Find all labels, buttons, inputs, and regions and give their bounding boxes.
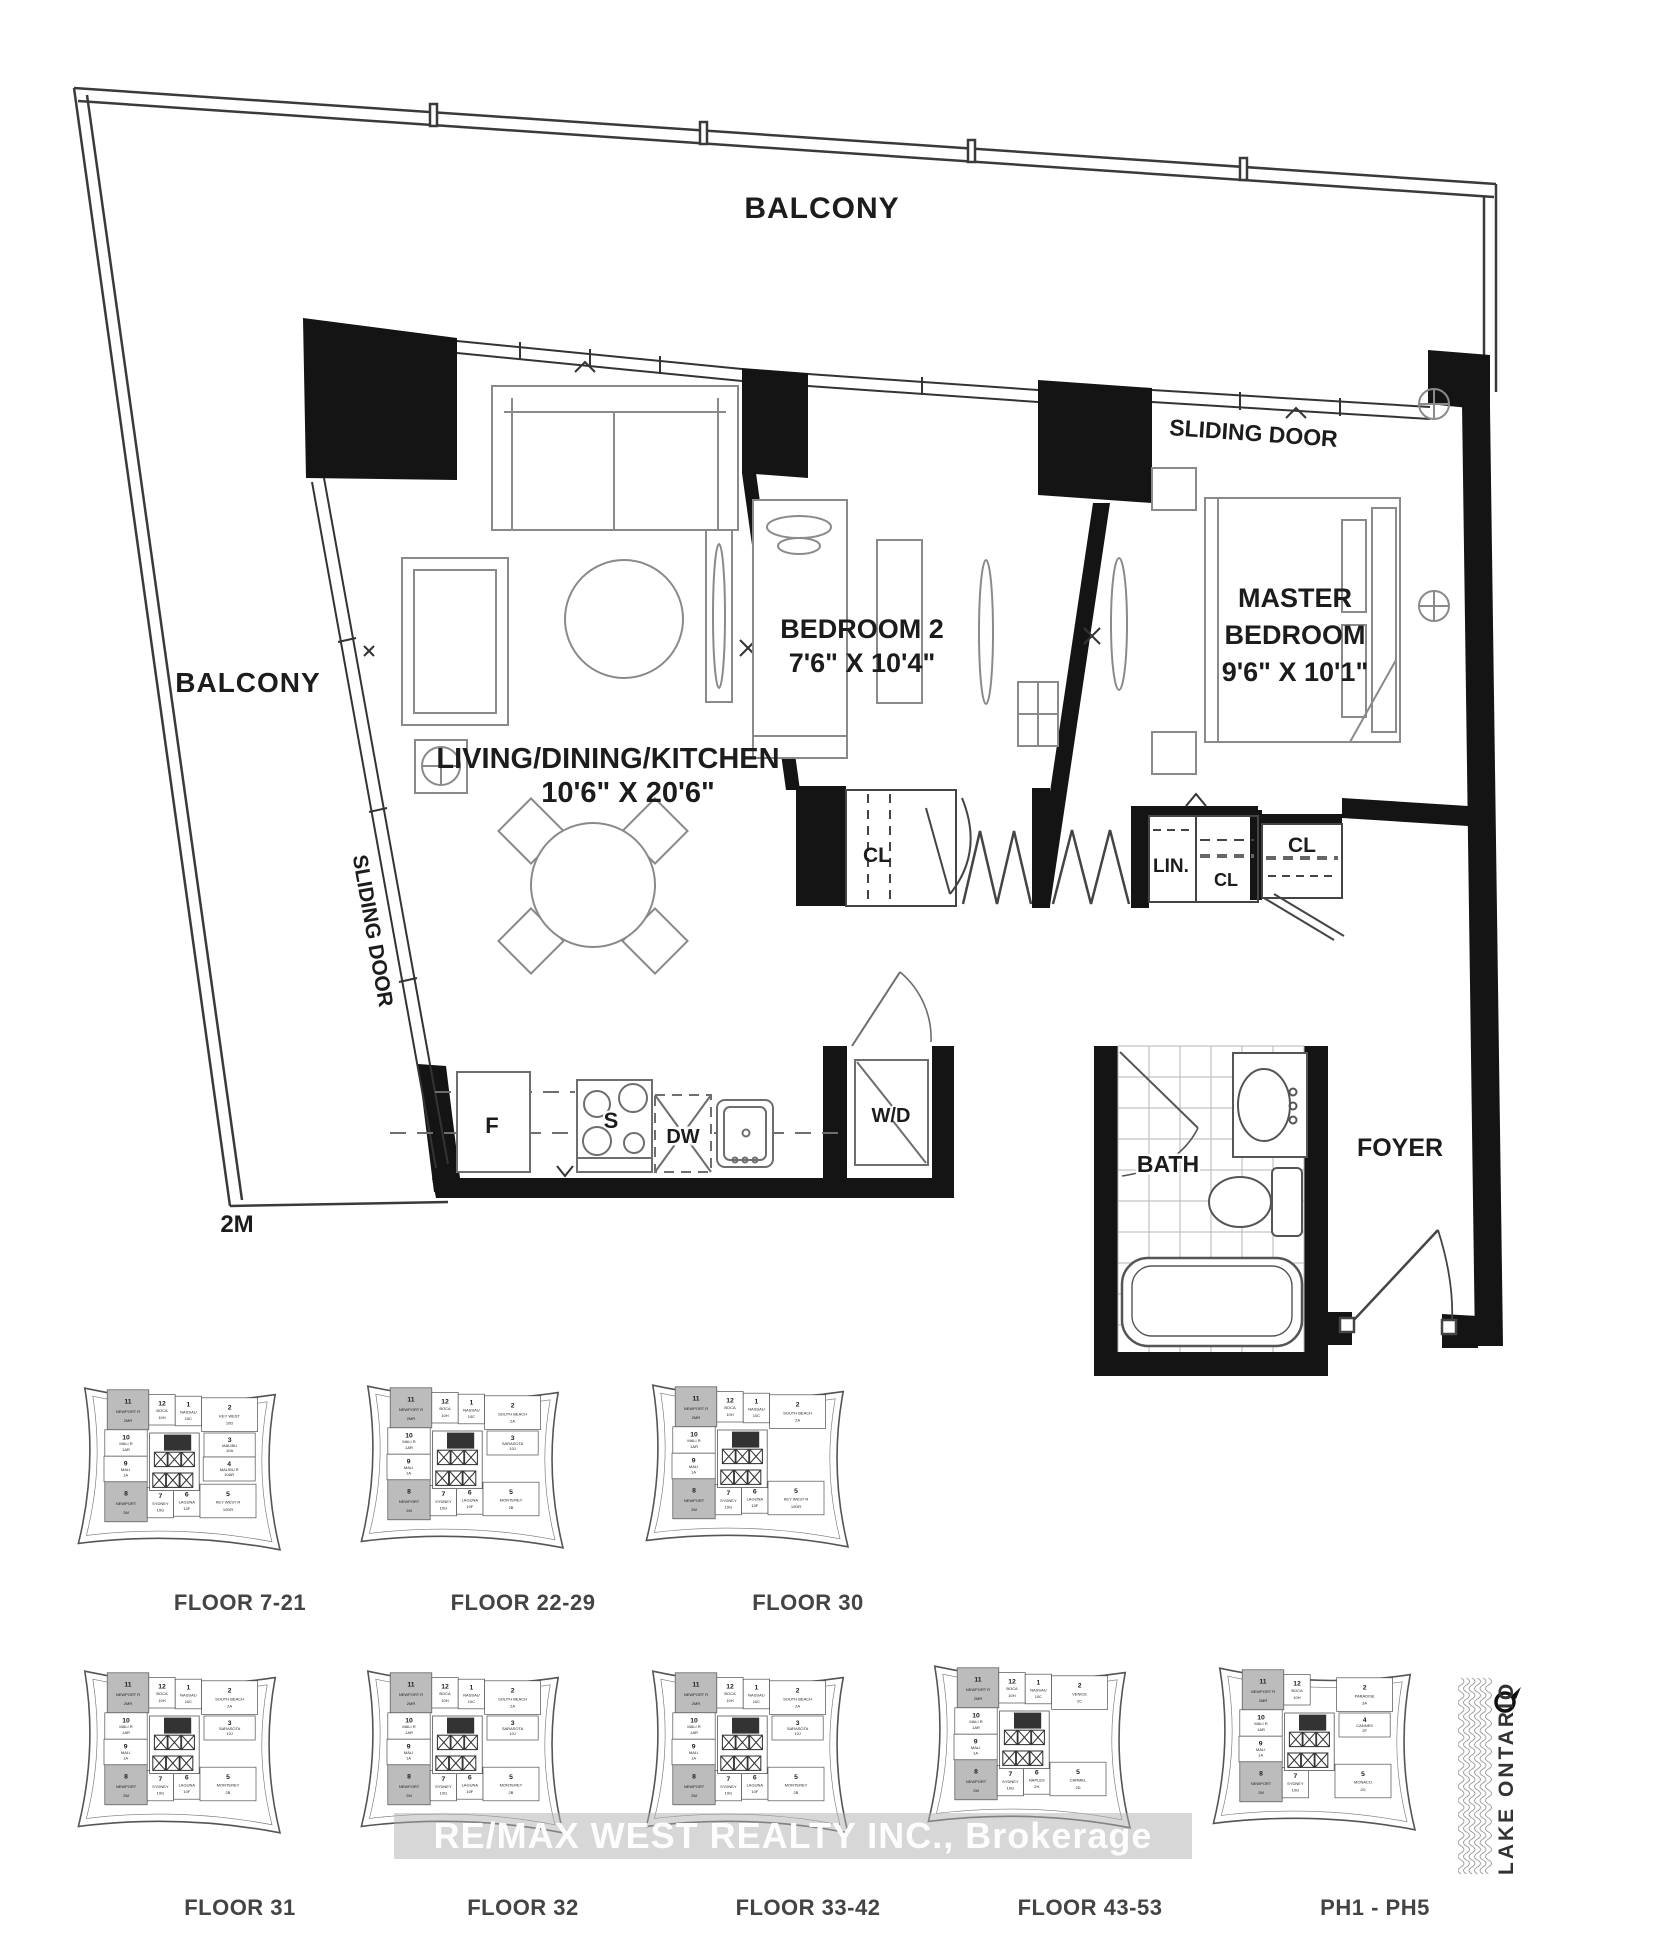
svg-text:10H: 10H	[441, 1413, 448, 1418]
svg-text:10F: 10F	[751, 1789, 758, 1794]
svg-text:2M: 2M	[406, 1508, 412, 1513]
svg-text:1AR: 1AR	[405, 1730, 413, 1735]
svg-text:1AR: 1AR	[690, 1444, 698, 1449]
svg-text:SYDNEY: SYDNEY	[720, 1784, 737, 1789]
svg-text:NEWPORT R: NEWPORT R	[966, 1687, 990, 1692]
svg-text:MALI R: MALI R	[119, 1724, 132, 1729]
svg-text:NASSAU: NASSAU	[1030, 1687, 1047, 1692]
svg-text:2A: 2A	[227, 1704, 232, 1709]
svg-text:10J: 10J	[509, 1731, 515, 1736]
keyplate-unit-3: 3MALIBU10A	[204, 1433, 255, 1457]
keyplate-unit-5: 5KEY WEST R10DR	[768, 1481, 824, 1515]
keyplate-floor-label: FLOOR 33-42	[700, 1895, 916, 1921]
walls	[303, 318, 1503, 1376]
keyplate-unit-5: 5MONTEREY2B	[483, 1767, 539, 1801]
keyplate-core	[718, 1430, 768, 1488]
svg-text:SARASOTA: SARASOTA	[219, 1726, 241, 1731]
keyplate-unit-8: 8NEWPORT2M	[673, 1479, 715, 1519]
keyplate-unit-3: 3SARASOTA10J	[487, 1716, 538, 1740]
svg-text:5: 5	[509, 1489, 513, 1496]
keyplate-floor-label: FLOOR 32	[415, 1895, 631, 1921]
svg-text:7: 7	[442, 1491, 446, 1498]
svg-text:1: 1	[755, 1685, 759, 1692]
svg-text:6: 6	[468, 1775, 472, 1782]
svg-text:2B: 2B	[509, 1790, 514, 1795]
svg-text:NEWPORT: NEWPORT	[399, 1499, 420, 1504]
keyplate-unit-9: 9MALI1A	[1239, 1736, 1282, 1762]
svg-text:MALI: MALI	[404, 1750, 413, 1755]
svg-text:MALI: MALI	[1256, 1747, 1265, 1752]
svg-text:2: 2	[796, 1687, 800, 1694]
keyplate-unit-2: 2SOUTH BEACH2A	[202, 1681, 258, 1715]
master-dims: 9'6" X 10'1"	[1222, 657, 1369, 687]
svg-text:NEWPORT R: NEWPORT R	[1251, 1689, 1275, 1694]
svg-text:10C: 10C	[468, 1699, 475, 1704]
svg-text:NEWPORT: NEWPORT	[966, 1779, 987, 1784]
svg-text:10F: 10F	[183, 1506, 190, 1511]
keyplate-unit-2: 2SOUTH BEACH2A	[770, 1681, 826, 1715]
keyplate-unit-8: 8NEWPORT2M	[673, 1765, 715, 1805]
svg-text:11: 11	[692, 1395, 699, 1402]
keyplate-unit-7: 7SYDNEY10G	[715, 1484, 741, 1514]
svg-text:10C: 10C	[753, 1413, 760, 1418]
svg-text:8: 8	[692, 1773, 696, 1780]
master-label-1: MASTER	[1238, 583, 1352, 613]
svg-text:12: 12	[158, 1400, 166, 1407]
svg-text:SOUTH BEACH: SOUTH BEACH	[498, 1696, 527, 1701]
keyplate-unit-7: 7SYDNEY10G	[147, 1770, 173, 1800]
svg-text:1: 1	[755, 1399, 759, 1406]
keyplate-unit-5: 5CARMEL2D	[1050, 1762, 1106, 1796]
balcony-top-label: BALCONY	[744, 192, 899, 225]
keyplate-unit-8: 8NEWPORT2M	[388, 1765, 430, 1805]
svg-text:2A: 2A	[795, 1418, 800, 1423]
svg-text:NASSAU: NASSAU	[748, 1406, 765, 1411]
keyplate-unit-7: 7SYDNEY10G	[430, 1485, 456, 1515]
closet-master-label: CL	[1288, 834, 1316, 857]
svg-text:NEWPORT: NEWPORT	[116, 1784, 137, 1789]
svg-text:10: 10	[122, 1434, 130, 1441]
keyplate-unit-10: 10MALI R1AR	[388, 1713, 430, 1739]
keyplate-core	[1285, 1713, 1335, 1771]
svg-text:5: 5	[226, 1491, 230, 1498]
keyplate-unit-2: 2SOUTH BEACH2A	[485, 1396, 541, 1430]
svg-text:MALI R: MALI R	[402, 1439, 415, 1444]
svg-text:10G: 10G	[725, 1505, 733, 1510]
svg-text:11: 11	[1259, 1678, 1266, 1685]
keyplate-unit-7: 7SYDNEY10G	[997, 1765, 1023, 1795]
brokerage-watermark: RE/MAX WEST REALTY INC., Brokerage	[394, 1813, 1192, 1859]
master-label-2: BEDROOM	[1225, 620, 1366, 650]
svg-text:11: 11	[124, 1681, 131, 1688]
svg-text:2M: 2M	[406, 1793, 412, 1798]
keyplate-floor-7-21: 11NEWPORT R2MR12BOCA10H1NASSAU10C2KEY WE…	[72, 1385, 288, 1577]
keyplate-unit-5: 5MONTEREY2B	[483, 1482, 539, 1516]
svg-text:2: 2	[511, 1402, 515, 1409]
keyplate-unit-5: 5MONTEREY2B	[200, 1767, 256, 1801]
svg-text:BOCA: BOCA	[156, 1408, 168, 1413]
svg-text:5: 5	[226, 1774, 230, 1781]
linen-cl-label: CL	[1214, 870, 1238, 890]
keyplate-core	[1000, 1711, 1050, 1769]
svg-text:12: 12	[441, 1398, 449, 1405]
keyplate-unit-11: 11NEWPORT R2MR	[390, 1673, 432, 1713]
svg-text:10F: 10F	[466, 1504, 473, 1509]
svg-text:10F: 10F	[751, 1503, 758, 1508]
svg-text:10J: 10J	[509, 1446, 515, 1451]
keyplate-unit-12: 12BOCA10H	[149, 1395, 175, 1425]
keyplate-unit-11: 11NEWPORT R2MR	[107, 1390, 149, 1430]
svg-text:2MR: 2MR	[124, 1418, 133, 1423]
keyplate-floor-label: FLOOR 30	[700, 1590, 916, 1616]
svg-text:MONTEREY: MONTEREY	[500, 1498, 523, 1503]
svg-text:1AR: 1AR	[690, 1730, 698, 1735]
svg-text:12: 12	[726, 1683, 734, 1690]
svg-text:6: 6	[753, 1489, 757, 1496]
closet-bedroom2-label: CL	[863, 844, 891, 867]
keyplate-unit-12: 12BOCA10H	[717, 1678, 743, 1708]
keyplate-unit-1: 1NASSAU10C	[743, 1393, 769, 1423]
svg-text:10DR: 10DR	[791, 1504, 801, 1509]
keyplate-floor-label: PH1 - PH5	[1267, 1895, 1483, 1921]
svg-text:1AR: 1AR	[122, 1730, 130, 1735]
svg-text:8: 8	[124, 1773, 128, 1780]
keyplate-floor-label: FLOOR 43-53	[982, 1895, 1198, 1921]
svg-text:NAPLES: NAPLES	[1029, 1777, 1045, 1782]
keyplate-unit-10: 10MALI R1AR	[673, 1427, 715, 1453]
svg-text:10: 10	[690, 1717, 698, 1724]
svg-text:2B: 2B	[226, 1790, 231, 1795]
svg-text:6: 6	[753, 1775, 757, 1782]
svg-text:8: 8	[692, 1487, 696, 1494]
svg-text:SYDNEY: SYDNEY	[435, 1499, 452, 1504]
svg-text:10H: 10H	[726, 1698, 733, 1703]
keyplate-floor-30: 11NEWPORT R2MR12BOCA10H1NASSAU10C2SOUTH …	[640, 1382, 856, 1574]
svg-text:5: 5	[1361, 1771, 1365, 1778]
svg-text:KEY WEST: KEY WEST	[219, 1413, 240, 1418]
svg-text:KEY WEST R: KEY WEST R	[216, 1500, 241, 1505]
svg-text:11: 11	[124, 1398, 131, 1405]
bedroom2-dims: 7'6" X 10'4"	[789, 648, 936, 678]
keyplate-unit-1: 1NASSAU10C	[743, 1679, 769, 1709]
keyplate-unit-1: 1NASSAU10C	[175, 1679, 201, 1709]
svg-text:KEY WEST R: KEY WEST R	[784, 1497, 809, 1502]
washer-dryer-label: W/D	[872, 1105, 911, 1127]
svg-text:2M: 2M	[973, 1788, 979, 1793]
svg-text:10G: 10G	[157, 1791, 165, 1796]
keyplate-unit-2: 2KEY WEST10D	[202, 1398, 258, 1432]
bath-fixtures	[1120, 1052, 1307, 1346]
svg-text:1: 1	[187, 1685, 191, 1692]
svg-text:CARMEL: CARMEL	[1070, 1778, 1087, 1783]
svg-text:10D: 10D	[226, 1421, 233, 1426]
svg-text:BOCA: BOCA	[724, 1405, 736, 1410]
svg-text:10F: 10F	[183, 1789, 190, 1794]
svg-text:10: 10	[972, 1712, 980, 1719]
svg-text:1: 1	[470, 1400, 474, 1407]
svg-text:SARASOTA: SARASOTA	[502, 1726, 524, 1731]
keyplate-unit-11: 11NEWPORT R2MR	[957, 1668, 999, 1708]
keyplate-unit-9: 9MALI1A	[104, 1739, 147, 1765]
svg-text:MONTEREY: MONTEREY	[785, 1783, 808, 1788]
keyplate-core	[433, 1716, 483, 1774]
svg-text:2MR: 2MR	[407, 1701, 416, 1706]
svg-text:2MR: 2MR	[692, 1701, 701, 1706]
keyplate-floor-label: FLOOR 31	[132, 1895, 348, 1921]
svg-text:MALI R: MALI R	[687, 1438, 700, 1443]
svg-text:2A: 2A	[795, 1704, 800, 1709]
bath-label: BATH	[1137, 1151, 1199, 1177]
svg-text:8: 8	[407, 1488, 411, 1495]
svg-text:2B: 2B	[794, 1790, 799, 1795]
svg-text:NASSAU: NASSAU	[463, 1692, 480, 1697]
keyplate-unit-4: 4CANNES2F	[1339, 1713, 1390, 1737]
bedroom2-label: BEDROOM 2	[780, 614, 944, 644]
svg-text:5: 5	[794, 1488, 798, 1495]
svg-text:1: 1	[1037, 1680, 1041, 1687]
svg-text:MONTEREY: MONTEREY	[217, 1783, 240, 1788]
svg-text:SOUTH BEACH: SOUTH BEACH	[783, 1410, 812, 1415]
svg-text:2MR: 2MR	[124, 1701, 133, 1706]
svg-text:BOCA: BOCA	[439, 1406, 451, 1411]
svg-text:10: 10	[1257, 1714, 1265, 1721]
keyplate-floor-label: FLOOR 22-29	[415, 1590, 631, 1616]
svg-text:3A: 3A	[1362, 1701, 1367, 1706]
keyplate-unit-9: 9MALI1A	[387, 1454, 430, 1480]
svg-text:8: 8	[974, 1768, 978, 1775]
keyplate-unit-5: 5MONACO2G	[1335, 1764, 1391, 1798]
svg-text:NEWPORT R: NEWPORT R	[684, 1406, 708, 1411]
svg-text:7: 7	[159, 1493, 163, 1500]
svg-text:2M: 2M	[123, 1510, 129, 1515]
keyplate-unit-9: 9MALI1A	[672, 1453, 715, 1479]
svg-text:NASSAU: NASSAU	[463, 1407, 480, 1412]
svg-text:10G: 10G	[440, 1791, 448, 1796]
svg-text:MALI: MALI	[689, 1464, 698, 1469]
svg-text:10H: 10H	[158, 1415, 165, 1420]
svg-text:MALI R: MALI R	[1254, 1721, 1267, 1726]
svg-text:5: 5	[509, 1774, 513, 1781]
keyplate-unit-7: 7SYDNEY10G	[1282, 1767, 1308, 1797]
svg-text:10J: 10J	[794, 1731, 800, 1736]
svg-text:10: 10	[122, 1717, 130, 1724]
keyplate-unit-9: 9MALI1A	[104, 1456, 147, 1482]
svg-text:2: 2	[228, 1687, 232, 1694]
keyplate-unit-1: 1NASSAU10C	[458, 1679, 484, 1709]
keyplate-unit-3: 3SARASOTA10J	[772, 1716, 823, 1740]
svg-text:MALI: MALI	[121, 1750, 130, 1755]
svg-text:NEWPORT: NEWPORT	[684, 1498, 705, 1503]
keyplate-unit-8: 8NEWPORT2M	[1240, 1762, 1282, 1802]
keyplate-unit-12: 12BOCA10H	[432, 1393, 458, 1423]
svg-text:10C: 10C	[468, 1414, 475, 1419]
svg-text:11: 11	[407, 1396, 414, 1403]
svg-text:2D: 2D	[1075, 1785, 1080, 1790]
svg-text:1A: 1A	[123, 1473, 128, 1478]
svg-text:10H: 10H	[1293, 1695, 1300, 1700]
svg-text:MALIBU: MALIBU	[222, 1443, 237, 1448]
svg-text:2G: 2G	[1360, 1787, 1365, 1792]
svg-text:SYDNEY: SYDNEY	[1287, 1781, 1304, 1786]
sliding-door-left-label: SLIDING DOOR	[348, 853, 397, 1009]
svg-text:BOCA: BOCA	[439, 1691, 451, 1696]
keyplate-unit-2: 2VENICE2C	[1052, 1676, 1108, 1710]
svg-text:CANNES: CANNES	[1356, 1723, 1373, 1728]
stove-label: S	[604, 1108, 619, 1133]
svg-text:MONACO: MONACO	[1354, 1780, 1372, 1785]
svg-text:10G: 10G	[157, 1508, 165, 1513]
svg-text:NEWPORT: NEWPORT	[399, 1784, 420, 1789]
svg-text:2MR: 2MR	[407, 1416, 416, 1421]
keyplate-unit-5: 5MONTEREY2B	[768, 1767, 824, 1801]
svg-text:BOCA: BOCA	[1291, 1688, 1303, 1693]
keyplate-unit-9: 9MALI1A	[672, 1739, 715, 1765]
svg-text:12: 12	[441, 1683, 449, 1690]
fridge-label: F	[485, 1113, 498, 1138]
keyplate-unit-7: 7SYDNEY10G	[147, 1487, 173, 1517]
dishwasher-label: DW	[666, 1126, 699, 1148]
svg-text:8: 8	[124, 1490, 128, 1497]
svg-text:10A: 10A	[226, 1448, 233, 1453]
keyplate-unit-12: 12BOCA10H	[149, 1678, 175, 1708]
svg-text:2M: 2M	[691, 1507, 697, 1512]
svg-text:10G: 10G	[440, 1506, 448, 1511]
keyplate-unit-4: 4MALIBU R10AR	[203, 1457, 255, 1481]
svg-text:1: 1	[187, 1402, 191, 1409]
svg-text:BOCA: BOCA	[1006, 1686, 1018, 1691]
svg-text:12: 12	[726, 1397, 734, 1404]
svg-text:MONTEREY: MONTEREY	[500, 1783, 523, 1788]
svg-text:MALI: MALI	[689, 1750, 698, 1755]
svg-text:6: 6	[185, 1492, 189, 1499]
svg-text:VENICE: VENICE	[1072, 1691, 1087, 1696]
keyplate-unit-12: 12BOCA10H	[717, 1392, 743, 1422]
lake-ontario-label: LAKE ONTARIO	[1495, 1721, 1519, 1875]
svg-text:10AR: 10AR	[224, 1472, 234, 1477]
svg-text:NEWPORT: NEWPORT	[116, 1501, 137, 1506]
svg-text:SARASOTA: SARASOTA	[787, 1726, 809, 1731]
svg-text:10J: 10J	[226, 1731, 232, 1736]
living-label: LIVING/DINING/KITCHEN	[436, 743, 779, 775]
linen-label: LIN.	[1153, 856, 1189, 877]
svg-text:2A: 2A	[510, 1419, 515, 1424]
svg-text:MALI: MALI	[404, 1465, 413, 1470]
svg-text:MALI R: MALI R	[969, 1719, 982, 1724]
svg-text:2MR: 2MR	[692, 1415, 701, 1420]
svg-text:1: 1	[470, 1685, 474, 1692]
svg-text:LAGUNA: LAGUNA	[747, 1496, 764, 1501]
svg-text:SYDNEY: SYDNEY	[152, 1501, 169, 1506]
keyplate-unit-1: 1NASSAU10C	[1025, 1674, 1051, 1704]
closets	[846, 790, 1344, 940]
svg-text:2MR: 2MR	[974, 1696, 983, 1701]
keyplate-core	[433, 1431, 483, 1489]
svg-text:2F: 2F	[1362, 1728, 1367, 1733]
keyplate-core	[150, 1716, 200, 1774]
keyplate-unit-2: 2SOUTH BEACH2A	[485, 1681, 541, 1715]
svg-text:2: 2	[1363, 1684, 1367, 1691]
svg-text:2M: 2M	[123, 1793, 129, 1798]
svg-text:SOUTH BEACH: SOUTH BEACH	[783, 1696, 812, 1701]
svg-text:NEWPORT R: NEWPORT R	[399, 1692, 423, 1697]
svg-text:1A: 1A	[1258, 1753, 1263, 1758]
svg-text:NASSAU: NASSAU	[748, 1692, 765, 1697]
svg-text:7: 7	[1009, 1771, 1013, 1778]
svg-text:10G: 10G	[1292, 1788, 1300, 1793]
keyplate-core	[718, 1716, 768, 1774]
svg-text:10: 10	[690, 1431, 698, 1438]
svg-text:10F: 10F	[466, 1789, 473, 1794]
keyplate-unit-10: 10MALI R1AR	[1240, 1710, 1282, 1736]
svg-text:NASSAU: NASSAU	[180, 1692, 197, 1697]
keyplate-unit-8: 8NEWPORT2M	[955, 1760, 997, 1800]
svg-text:SOUTH BEACH: SOUTH BEACH	[215, 1696, 244, 1701]
svg-text:NEWPORT R: NEWPORT R	[399, 1407, 423, 1412]
svg-text:1A: 1A	[123, 1756, 128, 1761]
svg-text:7: 7	[727, 1776, 731, 1783]
svg-text:1A: 1A	[691, 1756, 696, 1761]
keyplate-unit-11: 11NEWPORT R2MR	[675, 1387, 717, 1427]
svg-text:2MR: 2MR	[1259, 1698, 1268, 1703]
keyplate-unit-1: 1NASSAU10C	[175, 1396, 201, 1426]
kitchen	[390, 972, 931, 1172]
keyplate-unit-1: 1NASSAU10C	[458, 1394, 484, 1424]
svg-text:NEWPORT R: NEWPORT R	[684, 1692, 708, 1697]
svg-text:2: 2	[511, 1687, 515, 1694]
keyplate-unit-8: 8NEWPORT2M	[388, 1480, 430, 1520]
svg-text:2B: 2B	[509, 1505, 514, 1510]
keyplate-unit-2: 2SOUTH BEACH2A	[770, 1395, 826, 1429]
svg-text:10C: 10C	[185, 1416, 192, 1421]
svg-text:NEWPORT: NEWPORT	[684, 1784, 705, 1789]
svg-text:1AR: 1AR	[122, 1447, 130, 1452]
svg-text:7: 7	[727, 1490, 731, 1497]
svg-text:MALI R: MALI R	[402, 1724, 415, 1729]
svg-text:10: 10	[405, 1717, 413, 1724]
sliding-door-top-label: SLIDING DOOR	[1169, 414, 1339, 452]
svg-text:1AR: 1AR	[405, 1445, 413, 1450]
svg-text:1A: 1A	[406, 1756, 411, 1761]
svg-text:NEWPORT: NEWPORT	[1251, 1781, 1272, 1786]
floor-plan: BALCONY BALCONY SLIDING DOOR SLIDING DOO…	[0, 0, 1680, 1380]
svg-text:2H: 2H	[1034, 1784, 1039, 1789]
svg-text:2C: 2C	[1077, 1699, 1082, 1704]
keyplate-unit-10: 10MALI R1AR	[955, 1708, 997, 1734]
keyplate-unit-2: 2PARADISE3A	[1337, 1678, 1393, 1712]
foyer-label: FOYER	[1357, 1134, 1443, 1162]
svg-text:LAGUNA: LAGUNA	[462, 1497, 479, 1502]
svg-text:8: 8	[407, 1773, 411, 1780]
keyplate-core	[150, 1433, 200, 1491]
svg-text:12: 12	[1293, 1680, 1301, 1687]
svg-text:6: 6	[468, 1490, 472, 1497]
keyplate-unit-9: 9MALI1A	[954, 1734, 997, 1760]
svg-text:SYDNEY: SYDNEY	[435, 1784, 452, 1789]
svg-text:MALIBU R: MALIBU R	[220, 1467, 239, 1472]
svg-text:LAGUNA: LAGUNA	[179, 1499, 196, 1504]
svg-text:NEWPORT R: NEWPORT R	[116, 1409, 140, 1414]
keyplate-floor-31: 11NEWPORT R2MR12BOCA10H1NASSAU10C2SOUTH …	[72, 1668, 288, 1860]
svg-text:10C: 10C	[1035, 1694, 1042, 1699]
keyplate-unit-3: 3SARASOTA10J	[204, 1716, 255, 1740]
keyplate-unit-9: 9MALI1A	[387, 1739, 430, 1765]
svg-text:10C: 10C	[753, 1699, 760, 1704]
keyplate-unit-5: 5KEY WEST R10DR	[200, 1484, 256, 1518]
svg-text:8: 8	[1259, 1770, 1263, 1777]
svg-text:11: 11	[407, 1681, 414, 1688]
svg-text:11: 11	[692, 1681, 699, 1688]
svg-text:7: 7	[442, 1776, 446, 1783]
